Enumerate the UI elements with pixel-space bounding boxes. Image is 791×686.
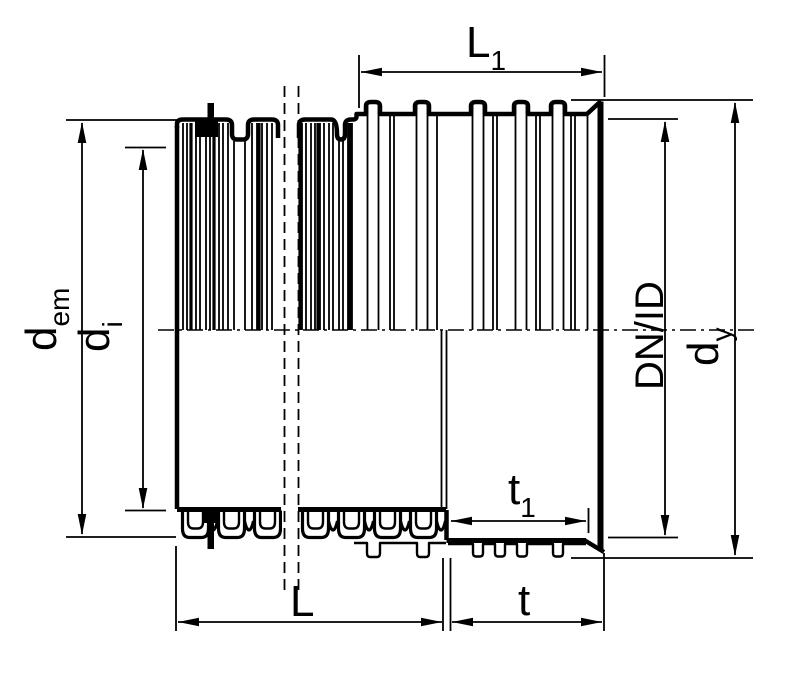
dimension-t: t bbox=[452, 576, 602, 626]
dimension-l1: L1 bbox=[361, 18, 602, 76]
pipe-section-diagram: L1 dem di DN/ID dy bbox=[0, 0, 791, 686]
dimension-l-label: L bbox=[290, 577, 314, 626]
break-lines bbox=[285, 86, 299, 590]
dimension-dy-label: dy bbox=[679, 328, 737, 366]
dimension-l1-label: L1 bbox=[466, 18, 506, 76]
dimension-di-label: di bbox=[70, 321, 128, 352]
dimension-l: L bbox=[178, 577, 442, 626]
dimension-dy: dy bbox=[679, 102, 739, 556]
dimension-dem-label: dem bbox=[17, 288, 75, 351]
dimension-t1: t1 bbox=[451, 465, 586, 525]
dimension-dnid: DN/ID bbox=[628, 121, 672, 536]
dimension-dnid-label: DN/ID bbox=[628, 281, 672, 390]
dimension-t1-label: t1 bbox=[508, 465, 536, 523]
dimension-t-label: t bbox=[518, 576, 530, 625]
technical-drawing-canvas: L1 dem di DN/ID dy bbox=[0, 0, 791, 686]
